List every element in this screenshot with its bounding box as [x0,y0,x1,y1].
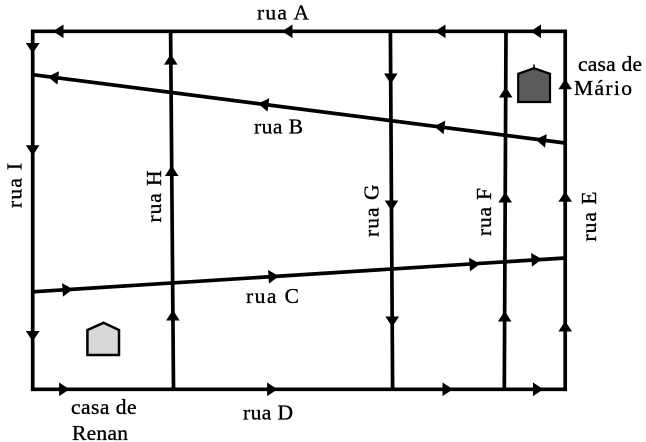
svg-text:Renan: Renan [72,421,128,442]
svg-text:rua H: rua H [142,171,166,223]
svg-text:rua A: rua A [257,1,309,25]
svg-text:rua E: rua E [577,192,601,242]
svg-text:rua G: rua G [360,185,384,238]
svg-text:Mário: Mário [574,76,632,100]
svg-text:casa de: casa de [578,52,642,76]
svg-text:rua F: rua F [472,188,496,236]
svg-text:rua D: rua D [243,401,293,425]
svg-text:rua I: rua I [3,163,27,208]
svg-text:rua B: rua B [254,115,303,139]
svg-text:casa de: casa de [71,395,137,419]
svg-text:rua C: rua C [246,284,299,308]
